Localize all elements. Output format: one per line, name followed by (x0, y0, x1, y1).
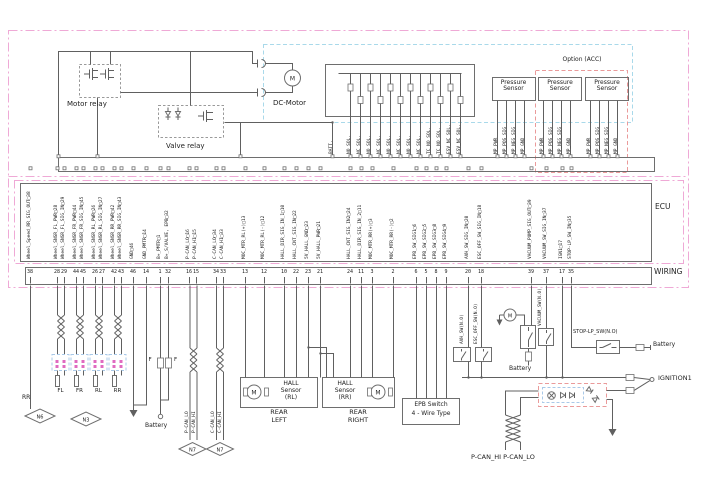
strip-pin-square (570, 167, 573, 170)
strip-pin-square (222, 167, 225, 170)
cluster-box (539, 384, 607, 407)
wiring-pin-number: 18 (473, 269, 489, 275)
switch-ign-wires (462, 286, 651, 380)
pressure-pin-label: MP_PWR (540, 137, 545, 153)
ecu-pin-label: STOP-LP_SW_IN□35 (568, 216, 573, 259)
pressure-pin-label: MP_GND (567, 137, 572, 153)
strip-pin-square (569, 155, 572, 158)
hall-rr-title: HALL Sensor (RR) (328, 380, 362, 402)
ecu-pin-label: HALL_CNT_SIG_IN2□24 (347, 208, 352, 259)
connector-pin-dot (75, 360, 78, 363)
strip-pin-square (57, 155, 60, 158)
ecu-pin-label: P-CAN_LO□16 (186, 229, 191, 259)
wheel-connector-label: RL (91, 388, 107, 394)
solenoid-coil (348, 84, 353, 91)
connector-n6-label: N6 (37, 415, 44, 421)
connector-n3-label: N3 (83, 418, 90, 424)
ecu-pin-label: IGN1□17 (559, 240, 564, 259)
wiring-pin-number: 35 (563, 269, 579, 275)
strip-pin-square (101, 167, 104, 170)
vacuum-motor-letter: M (508, 314, 512, 320)
ccan-lo-label: C-CAN_LO (211, 411, 216, 433)
fuse (158, 358, 164, 368)
strip-pin-square (319, 167, 322, 170)
wiring-pin-number: 13 (237, 269, 253, 275)
rr-stub-label: RR (22, 395, 30, 402)
pcan-pair-label: P-CAN_HI P-CAN_LO (471, 454, 535, 461)
strip-pin-square (371, 167, 374, 170)
strip-pin-square (195, 167, 198, 170)
ecu-pin-label: ESC_OFF_SW_SIG_IN□18 (478, 205, 483, 259)
pressure-sensor-2-label: Pressure Sensor (539, 80, 582, 94)
strip-pin-square (459, 155, 462, 158)
connector-pin-dot (63, 365, 66, 368)
wheel-sensor-pin (94, 376, 98, 387)
strip-pin-square (415, 167, 418, 170)
solenoid-coil (448, 84, 453, 91)
offpage-connectors: N6 N3 N7 N7 (25, 409, 234, 456)
connector-pin-dot (82, 365, 85, 368)
solenoid-wire-label: NC SOL. (357, 135, 362, 154)
strip-pin-square (283, 167, 286, 170)
strip-pin-square (561, 167, 564, 170)
strip-pin-square (349, 167, 352, 170)
strip-pin-square (239, 155, 242, 158)
ecu-pin-label: HALL_CNT_SIG_IN□22 (293, 210, 298, 259)
wheel-connector-label: FL (53, 388, 69, 394)
dc-motor-label: DC-Motor (273, 99, 306, 107)
solenoid-coil (428, 84, 433, 91)
cluster-inner-box (543, 388, 584, 403)
connector-pin-dot (120, 360, 123, 363)
junction-dot (331, 121, 333, 123)
strip-pin-square (496, 155, 499, 158)
strip-pin-square (96, 155, 99, 158)
ecu-pin-label: EPB_SW_SIG4□9 (443, 224, 448, 259)
fuse-label-right: F (174, 357, 177, 363)
wiring-pin-number: 2 (385, 269, 401, 275)
hall-rr-motor-letter: M (375, 390, 380, 397)
connector-pin-dot (75, 365, 78, 368)
ecu-pin-label: HALL_DIR_SIG_IN_1□10 (281, 205, 286, 259)
strip-pin-square (369, 155, 372, 158)
ecu-pin-label: C-CAN_LO□34 (213, 229, 218, 259)
strip-pin-square (295, 167, 298, 170)
valve-relay-internals (166, 108, 214, 123)
solenoid-coil (438, 97, 443, 104)
strip-pin-square (607, 155, 610, 158)
pcan-lo-label: P-CAN_LO (185, 411, 190, 433)
strip-pin-square (514, 155, 517, 158)
connector-pin-dot (56, 360, 59, 363)
connector-pin-dot (94, 365, 97, 368)
solenoid-wire-label: NC SOL. (377, 135, 382, 154)
pressure-pin-label: MP_GND (614, 137, 619, 153)
strip-pin-square (167, 167, 170, 170)
solenoid-wire-label: ESV_NC SOL. (457, 124, 462, 154)
strip-pin-square (349, 155, 352, 158)
battery-terminal (158, 414, 162, 418)
solenoid-wire-label: NO SOL. (367, 135, 372, 154)
strip-pin-square (63, 167, 66, 170)
connector-pin-dot (113, 365, 116, 368)
fuse (166, 358, 172, 368)
ecu-pin-label: Wheel_SNSR_FR_SIG_IN□45 (80, 197, 85, 259)
strip-pin-square (449, 155, 452, 158)
cluster-module (506, 381, 651, 451)
diode-icon (570, 393, 575, 399)
strip-pin-square (399, 155, 402, 158)
ccan-hi-label: C-CAN_HI (218, 411, 223, 433)
solenoid-wire-label: NO SOL. (407, 135, 412, 154)
ecu-pin-label: B+_PMTR□1 (157, 235, 162, 259)
strip-pin-square (29, 167, 32, 170)
option-acc-label: Option (ACC) (551, 57, 613, 64)
pressure-pin-label: MP_PWR (587, 137, 592, 153)
ecu-pin-label: VACUUM_SW_SIG_IN□37 (543, 208, 548, 259)
strip-pin-square (467, 167, 470, 170)
battery-label-stoplamp: Battery (653, 342, 675, 349)
ecu-pin-label: 5V_HALL_PWR□21 (317, 221, 322, 259)
dc-motor-letter: M (290, 76, 295, 83)
hall-rl-motor-symbol: M (244, 385, 269, 399)
solenoid-wire-label: NC SOL. (397, 135, 402, 154)
wiring-pin-number: 3 (364, 269, 380, 275)
junction-dot (561, 376, 563, 378)
solenoid-wire-label: TC_NO SOL. (437, 127, 442, 154)
ecu-pin-label: C-CAN_HI□33 (220, 229, 225, 259)
connector-pin-dot (101, 365, 104, 368)
wheel-connector-box (71, 355, 88, 371)
pressure-pin-label: MP_GND (521, 137, 526, 153)
pressure-pin-label: MP_NEG_SIG (558, 126, 563, 153)
pcan-hi-label: P-CAN_HI (192, 411, 197, 433)
connector-pin-dot (94, 360, 97, 363)
ecu-pin-label: Wheel_Speed_RR_SIG_OUT□38 (27, 191, 32, 259)
wiring-pin-number: 9 (438, 269, 454, 275)
diode-icon (561, 393, 566, 399)
ground-arrow (130, 410, 138, 417)
connector-pin-dot (120, 365, 123, 368)
ecu-pin-label: Wheel_SNSR_FL_PWR□28 (54, 205, 59, 259)
connector-pin-dot (113, 360, 116, 363)
solenoid-coil (358, 97, 363, 104)
solenoid-coil (458, 97, 463, 104)
wheel-connector-label: RR (110, 388, 126, 394)
fuse (626, 375, 634, 381)
strip-pin-square (392, 167, 395, 170)
strip-pin-square (188, 167, 191, 170)
pressure-sensor-3-label: Pressure Sensor (586, 80, 629, 94)
ecu-pin-label: EPB_SW_SIG2□5 (423, 224, 428, 259)
battery-label-main: Battery (145, 423, 167, 430)
hall-rr-motor-symbol: M (368, 385, 393, 399)
wheel-sensor-pin (75, 376, 79, 387)
connector-n7-label: N7 (189, 448, 196, 454)
solenoid-wire-label: NO SOL. (347, 135, 352, 154)
strip-pin-square (132, 167, 135, 170)
ecu-pin-label: VACUUM_PUMP_SIG_OUT□39 (528, 199, 533, 259)
junction-dot (545, 376, 547, 378)
strip-pin-square (82, 167, 85, 170)
solenoid-coil (398, 97, 403, 104)
vacuum-relay-glyph (529, 327, 533, 347)
ignition-terminal (650, 378, 654, 382)
strip-pin-square (439, 155, 442, 158)
fuse (526, 352, 532, 361)
connector-n7-label: N7 (217, 448, 224, 454)
ecu-label: ECU (655, 203, 670, 212)
vacuum-switch-label: VACUUM_SW(N.O) (538, 288, 543, 326)
ecu-pin-label: MOC_MTR_RL(+)□13 (242, 216, 247, 259)
solenoid-coil (408, 84, 413, 91)
strip-pin-square (360, 167, 363, 170)
ecu-pin-label: Wheel_SNSR_RL_PWR□26 (92, 205, 97, 259)
epb-switch-title: EPB Switch (403, 402, 459, 409)
strip-pin-square (75, 167, 78, 170)
ignition-label: IGNITION1 (658, 375, 692, 382)
connector-pin-dot (101, 360, 104, 363)
solenoid-wire-label: NC SOL. (417, 135, 422, 154)
solenoid-coil (378, 97, 383, 104)
strip-pin-square (598, 155, 601, 158)
junction-dot (307, 346, 309, 348)
ecu-pin-label: Wheel_SNSR_FL_SIG_IN□29 (61, 197, 66, 259)
ecu-pin-label: MOC_MTR_RR(+)□3 (369, 218, 374, 259)
wiring-label: WIRING (654, 268, 682, 277)
ecu-pin-label: GND_PMTR□14 (143, 229, 148, 259)
solenoid-wire-label: BATT. (329, 140, 334, 154)
rear-right-label: REAR RIGHT (341, 408, 375, 424)
ecu-pin-label: EPB_SW_SIG1□6 (413, 224, 418, 259)
rear-left-label: REAR LEFT (263, 408, 295, 424)
strip-pin-square (560, 155, 563, 158)
strip-pin-square (215, 167, 218, 170)
strip-pin-square (505, 155, 508, 158)
wheel-connector-box (52, 355, 69, 371)
ecu-pin-label: HALL_DIR_SIG_IN_2□11 (358, 205, 363, 259)
valve-relay-label: Valve relay (166, 142, 205, 150)
connector-pin-dot (82, 360, 85, 363)
wiring-pin-number: 33 (215, 269, 231, 275)
motor-relay-label: Motor relay (67, 100, 107, 108)
strip-pin-square (445, 167, 448, 170)
fuse (626, 388, 634, 394)
ecu-pin-label: EPB_SW_SIG3□8 (433, 224, 438, 259)
pressure-pin-label: MP_POS_SIG (503, 126, 508, 153)
avh-switch-label: AVH_SW(N.O) (460, 314, 465, 344)
fuse-label-left: F (149, 357, 152, 363)
ecu-pin-label: Wheel_SNSR_RR_SIG_IN□43 (118, 197, 123, 259)
strip-pin-square (389, 155, 392, 158)
strip-pin-square (616, 155, 619, 158)
stop-lamp-switch-label: STOP-LP_SW(N.O) (573, 330, 617, 336)
solenoid-coil (388, 84, 393, 91)
solenoid-coil (418, 97, 423, 104)
esc-switch-glyph (484, 349, 489, 361)
wheel-connector-box (109, 355, 126, 371)
wheel-sensor-pin (56, 376, 60, 387)
strip-pin-square (425, 167, 428, 170)
ecu-pin-label: MOC_MTR_RL(-)□12 (261, 216, 266, 259)
battery-label-vacuum: Battery (509, 366, 531, 373)
vacuum-pump-motor: M (497, 309, 532, 366)
esc-off-switch-label: ESC_OFF_SW(N.O) (474, 303, 479, 344)
strip-pin-square (379, 155, 382, 158)
ecu-pin-label: P-CAN_HI□15 (193, 229, 198, 259)
strip-pin-square (523, 155, 526, 158)
ground-arrow (497, 320, 503, 326)
pressure-pin-label: MP_NEG_SIG (512, 126, 517, 153)
strip-pin-square (419, 155, 422, 158)
strip-pin-square (409, 155, 412, 158)
epb-switch-subtitle: 4 - Wire Type (403, 411, 459, 418)
wiring-pin-number: 39 (523, 269, 539, 275)
wiring-pin-number: 38 (22, 269, 38, 275)
strip-pin-square (551, 155, 554, 158)
ecu-pin-label: MOC_MTR_RR(-)□2 (390, 218, 395, 259)
wheel-connector-label: FR (72, 388, 88, 394)
pressure-sensor-1-label: Pressure Sensor (492, 80, 535, 94)
wiring-diagram: M N6 N3 N7 N7 M M (0, 0, 701, 499)
strip-pin-square (120, 167, 123, 170)
wiring-pin-number: 37 (538, 269, 554, 275)
strip-pin-square (429, 155, 432, 158)
fuse (636, 345, 644, 351)
strip-pin-square (545, 167, 548, 170)
strip-pin-square (94, 167, 97, 170)
strip-pin-square (263, 167, 266, 170)
strip-pin-square (359, 155, 362, 158)
ecu-pin-label: 5V_HALL_GND□23 (305, 221, 310, 259)
ecu-pin-label: Wheel_SNSR_RL_SIG_IN□27 (99, 197, 104, 259)
junction-dot (467, 376, 469, 378)
ecu-pin-label: B+_S/VALVE, EPB□32 (165, 210, 170, 259)
hall-rl-title: HALL Sensor (RL) (274, 380, 308, 402)
diode-icon (592, 395, 599, 402)
motor-relay-mosfets (84, 68, 114, 80)
strip-pin-square (331, 155, 334, 158)
wiring-pin-number: 15 (188, 269, 204, 275)
wheel-sensor-pin (113, 376, 117, 387)
junction-dot (319, 352, 321, 354)
strip-pin-square (113, 167, 116, 170)
connector-pin-dot (63, 360, 66, 363)
strip-pin-square (307, 167, 310, 170)
solenoid-wire-label: NO SOL. (387, 135, 392, 154)
ecu-pin-label: GND□46 (130, 243, 135, 259)
strip-pin-square (56, 167, 59, 170)
solenoid-wire-label: TC_NO SOL. (427, 127, 432, 154)
wiring-pin-number: 12 (256, 269, 272, 275)
ecu-pin-label: AVH_SW_SIG_IN□20 (465, 216, 470, 259)
solenoid-coil (368, 84, 373, 91)
diode-icon (586, 387, 593, 394)
strip-pin-square (159, 167, 162, 170)
pressure-pin-label: MP_PWR (494, 137, 499, 153)
wheel-connector-box (90, 355, 107, 371)
strip-pin-square (244, 167, 247, 170)
strip-pin-square (530, 167, 533, 170)
pressure-pin-label: MP_POS_SIG (596, 126, 601, 153)
motor-relay-box (80, 65, 121, 98)
solenoid-wire-label: ESV_NC SOL. (447, 124, 452, 154)
wiring-pin-number: 21 (312, 269, 328, 275)
ecu-pin-label: Wheel_SNSR_FR_PWR□44 (73, 205, 78, 259)
avh-switch-glyph (462, 349, 467, 361)
pressure-pin-label: MP_NEG_SIG (605, 126, 610, 153)
strip-pin-square (435, 167, 438, 170)
junction-dot (480, 376, 482, 378)
connector-pin-dot (56, 365, 59, 368)
hall-rl-motor-letter: M (251, 390, 256, 397)
pressure-pin-label: MP_POS_SIG (549, 126, 554, 153)
stop-lamp-switch-glyph (600, 344, 617, 348)
vacuum-switch-glyph (547, 330, 552, 344)
strip-pin-square (480, 167, 483, 170)
ecu-pin-label: Wheel_SNSR_RR_PWR□42 (111, 205, 116, 259)
wiring-pin-number: 32 (160, 269, 176, 275)
strip-pin-square (542, 155, 545, 158)
strip-pin-square (145, 167, 148, 170)
ground-arrow (609, 429, 617, 436)
strip-pin-square (589, 155, 592, 158)
